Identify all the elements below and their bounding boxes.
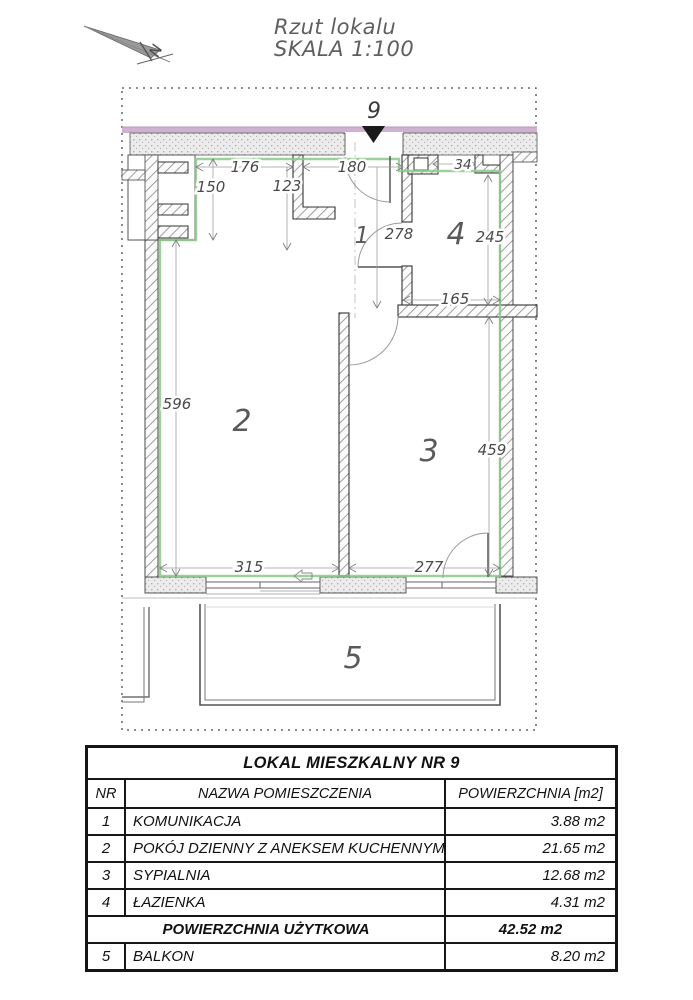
total-label: POWIERZCHNIA UŻYTKOWA (88, 915, 444, 942)
row-nr: 2 (88, 834, 124, 861)
window-bedroom (406, 582, 496, 588)
room-label-3: 3 (419, 434, 438, 469)
total-area: 42.52 m2 (444, 915, 615, 942)
row-name: POKÓJ DZIENNY Z ANEKSEM KUCHENNYM (124, 834, 444, 861)
dim-596: 596 (163, 395, 192, 413)
facade-band (122, 127, 537, 133)
row-name: ŁAZIENKA (124, 888, 444, 915)
dim-180: 180 (338, 158, 367, 176)
dim-315: 315 (235, 558, 264, 576)
row-name: BALKON (124, 942, 444, 969)
dim-278: 278 (385, 225, 414, 243)
dim-176: 176 (231, 158, 260, 176)
row-name: KOMUNIKACJA (124, 807, 444, 834)
drawing-title: Rzut lokalu (274, 15, 396, 39)
room-label-1: 1 (355, 223, 370, 249)
dim-34: 34 (454, 157, 471, 173)
installation-shaft (128, 155, 195, 240)
row-area: 21.65 m2 (444, 834, 615, 861)
drawing-scale: SKALA 1:100 (274, 37, 414, 61)
row-area: 8.20 m2 (444, 942, 615, 969)
area-table: LOKAL MIESZKALNY NR 9 NR NAZWA POMIESZCZ… (85, 745, 618, 972)
top-wall (130, 133, 537, 155)
col-header-area: POWIERZCHNIA [m2] (444, 778, 615, 807)
room-divider-wall (339, 313, 349, 576)
room-label-2: 2 (232, 404, 251, 439)
neighbour-balcony (122, 607, 149, 702)
row-nr: 5 (88, 942, 124, 969)
room-label-5: 5 (343, 641, 362, 676)
balcony-door (443, 533, 488, 578)
bedroom-door (349, 316, 398, 365)
neighbour-wall-left (122, 170, 145, 180)
col-header-name: NAZWA POMIESZCZENIA (124, 778, 444, 807)
bottom-wall (122, 577, 537, 598)
right-wall (500, 155, 513, 576)
row-name: SYPIALNIA (124, 861, 444, 888)
table-title: LOKAL MIESZKALNY NR 9 (88, 748, 615, 778)
floor-plan-page: N Rzut lokalu SKALA 1:100 (0, 0, 693, 1000)
room-label-4: 4 (446, 217, 465, 252)
col-header-nr: NR (88, 778, 124, 807)
dim-277: 277 (415, 558, 444, 576)
dim-165: 165 (441, 290, 470, 308)
row-nr: 1 (88, 807, 124, 834)
row-area: 4.31 m2 (444, 888, 615, 915)
floor-plan-drawing: N Rzut lokalu SKALA 1:100 (0, 0, 693, 742)
row-nr: 3 (88, 861, 124, 888)
row-area: 3.88 m2 (444, 807, 615, 834)
north-arrow-icon: N (84, 26, 173, 64)
dim-150: 150 (197, 178, 226, 196)
dim-245: 245 (476, 228, 505, 246)
window-living (206, 582, 320, 588)
row-nr: 4 (88, 888, 124, 915)
neighbour-wall-right (513, 152, 537, 162)
dim-459: 459 (478, 441, 507, 459)
row-area: 12.68 m2 (444, 861, 615, 888)
dim-123: 123 (273, 177, 302, 195)
entrance-number: 9 (367, 99, 381, 124)
